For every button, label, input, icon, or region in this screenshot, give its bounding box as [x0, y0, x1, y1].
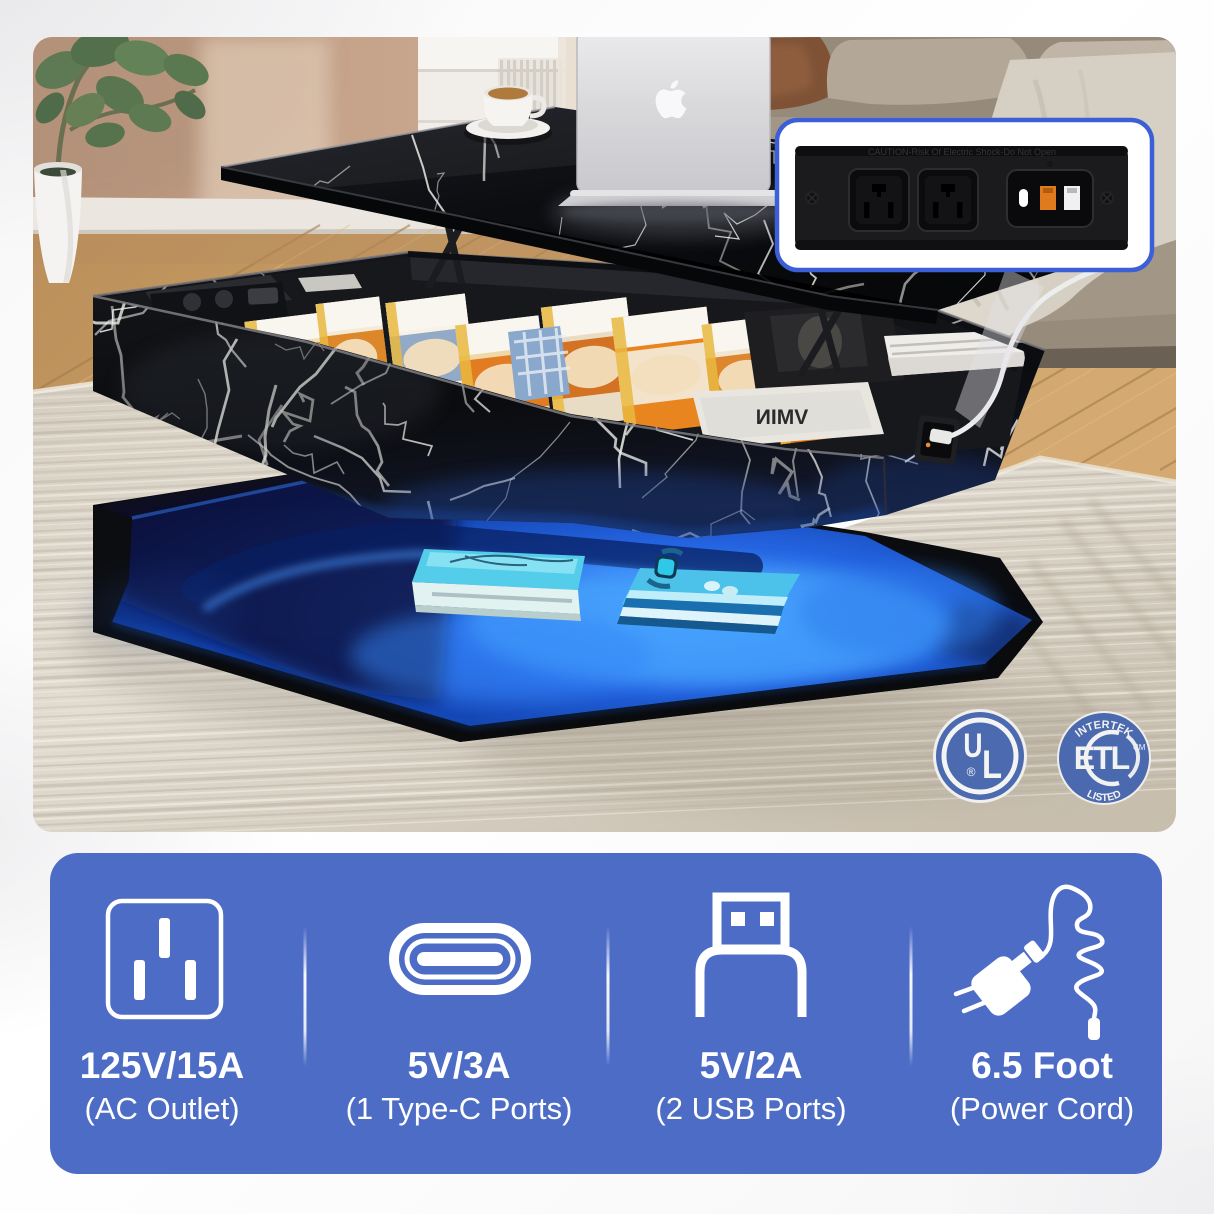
svg-text:ETL: ETL — [1074, 740, 1130, 776]
svg-text:5V/3A: 5V/3A — [408, 1045, 511, 1086]
svg-text:VMIN: VMIN — [756, 406, 809, 429]
svg-text:®: ® — [967, 765, 976, 779]
svg-text:(AC Outlet): (AC Outlet) — [84, 1091, 239, 1126]
svg-text:125V/15A: 125V/15A — [80, 1045, 245, 1086]
svg-text:(Power Cord): (Power Cord) — [950, 1091, 1134, 1126]
svg-text:6.5 Foot: 6.5 Foot — [971, 1045, 1113, 1086]
svg-text:U: U — [963, 727, 982, 765]
svg-text:CAUTION-Risk Of Electric Shock: CAUTION-Risk Of Electric Shock-Do Not Op… — [868, 147, 1056, 157]
svg-text:CM: CM — [1133, 743, 1146, 752]
svg-text:(2 USB Ports): (2 USB Ports) — [655, 1091, 846, 1126]
svg-text:(1 Type-C Ports): (1 Type-C Ports) — [346, 1091, 573, 1126]
svg-text:5V/2A: 5V/2A — [700, 1045, 803, 1086]
svg-text:L: L — [982, 742, 1002, 787]
